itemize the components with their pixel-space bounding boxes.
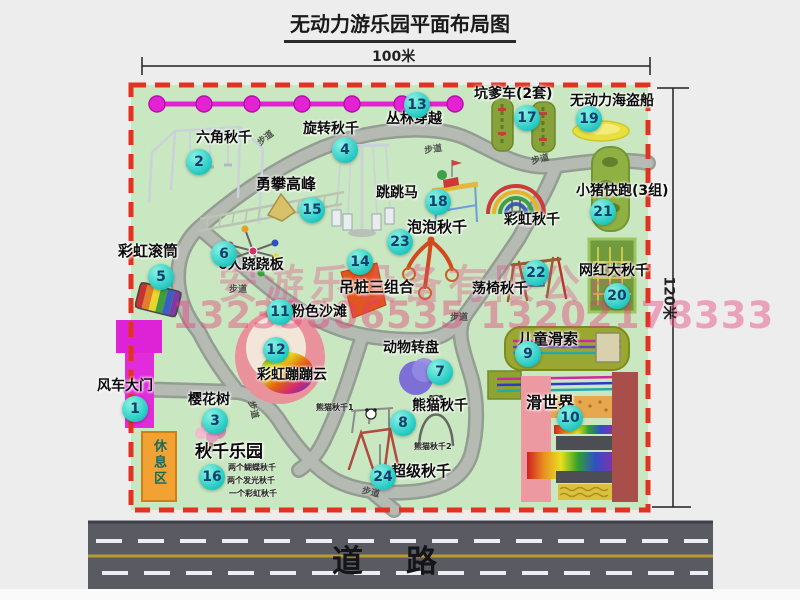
- badge-slide-world: 10: [557, 405, 583, 431]
- badge-cherry-tree: 3: [202, 408, 228, 434]
- label-climbing-peak: 勇攀高峰: [256, 176, 316, 193]
- badge-kengdie-car: 17: [514, 105, 540, 131]
- badge-six-person-seesaw: 6: [211, 241, 237, 267]
- label-bubble-swing: 泡泡秋千: [407, 219, 467, 236]
- label-rainbow-roller: 彩虹滚筒: [118, 243, 178, 260]
- badge-rotating-swing: 4: [332, 137, 358, 163]
- rest-area-label: 休息区: [149, 439, 168, 487]
- label-jumping-horse: 跳跳马: [376, 186, 418, 201]
- label-big-swing: 网红大秋千: [579, 264, 649, 279]
- badge-hanging-pile-combo: 14: [347, 249, 373, 275]
- label-rotating-swing: 旋转秋千: [303, 122, 359, 137]
- label-hexagon-swing: 六角秋千: [196, 131, 252, 146]
- label-rainbow-bounce-cloud: 彩虹蹦蹦云: [257, 368, 327, 383]
- road-label: 道 路: [332, 536, 443, 581]
- swing-paradise-detail-2: 两个发光秋千: [227, 475, 275, 486]
- badge-pirate-ship: 19: [576, 106, 602, 132]
- walkway-label-4: 步道: [229, 282, 247, 295]
- panda-swing-2-label: 熊猫秋千2: [414, 441, 452, 452]
- map-vector-layer: [0, 0, 800, 600]
- badge-kids-zipline: 9: [515, 341, 541, 367]
- label-swing-paradise: 秋千乐园: [195, 443, 263, 462]
- badge-rainbow-roller: 5: [148, 264, 174, 290]
- badge-windmill-gate: 1: [122, 396, 148, 422]
- height-dimension-label: 120米: [660, 276, 680, 319]
- walkway-label-5: 步道: [450, 310, 468, 323]
- swing-paradise-detail-3: 一个彩虹秋千: [229, 488, 277, 499]
- page-title: 无动力游乐园平面布局图: [284, 8, 516, 43]
- label-super-swing: 超级秋千: [391, 463, 451, 480]
- walkway-label-2: 步道: [423, 141, 443, 156]
- label-piggy-run: 小猪快跑(3组): [576, 184, 669, 199]
- label-chair-swing: 荡椅秋千: [472, 282, 528, 297]
- swing-paradise-detail-1: 两个蝴蝶秋千: [228, 462, 276, 473]
- badge-pink-beach: 11: [267, 299, 293, 325]
- label-animal-carousel: 动物转盘: [383, 341, 439, 356]
- label-hanging-pile-combo: 吊桩三组合: [339, 279, 414, 296]
- badge-chair-swing: 22: [523, 260, 549, 286]
- badge-rainbow-bounce-cloud: 12: [263, 337, 289, 363]
- label-rainbow-swing: 彩虹秋千: [504, 213, 560, 228]
- label-pink-beach: 粉色沙滩: [291, 305, 347, 320]
- badge-climbing-peak: 15: [299, 197, 325, 223]
- badge-animal-carousel: 7: [427, 359, 453, 385]
- badge-jumping-horse: 18: [425, 189, 451, 215]
- badge-bubble-swing: 23: [387, 229, 413, 255]
- park-layout-map: 安游乐设备有限公司 13233806535 13202178333 无动力游乐园…: [0, 0, 800, 600]
- badge-hexagon-swing: 2: [186, 149, 212, 175]
- badge-panda-swing: 8: [390, 410, 416, 436]
- label-kengdie-car: 坑爹车(2套): [474, 87, 553, 102]
- label-cherry-tree: 樱花树: [188, 393, 230, 408]
- panda-swing-1-label: 熊猫秋千1: [316, 402, 354, 413]
- badge-jungle-crossing: 13: [404, 92, 430, 118]
- badge-piggy-run: 21: [590, 199, 616, 225]
- label-panda-swing: 熊猫秋千: [412, 399, 468, 414]
- badge-swing-paradise: 16: [199, 464, 225, 490]
- width-dimension-label: 100米: [372, 46, 415, 66]
- label-windmill-gate: 风车大门: [97, 379, 153, 394]
- badge-big-swing: 20: [604, 283, 630, 309]
